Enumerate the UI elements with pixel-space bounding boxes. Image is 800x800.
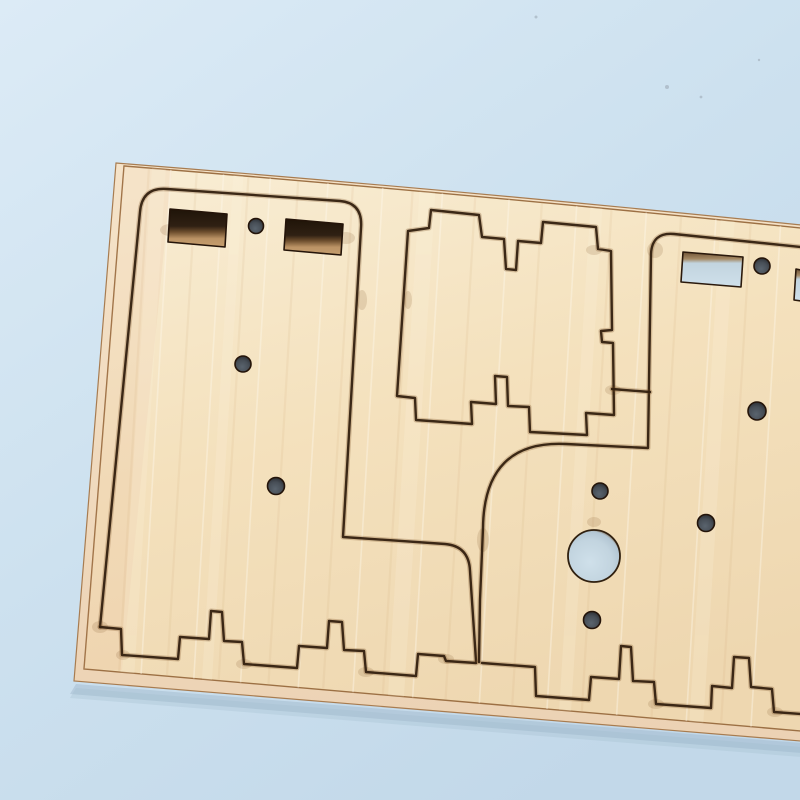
dust-speck — [758, 59, 760, 61]
slot-left-panel-1 — [168, 209, 227, 247]
photo-canvas — [0, 0, 800, 800]
dust-speck — [535, 16, 538, 19]
small-hole — [584, 612, 601, 629]
large-through-hole — [568, 530, 620, 582]
photo — [0, 0, 800, 800]
dust-speck — [700, 96, 703, 99]
small-hole — [249, 219, 264, 234]
small-hole — [235, 356, 251, 372]
slot-right-panel — [681, 252, 743, 287]
burn-mark — [587, 517, 601, 527]
slot-right-panel-edge — [794, 269, 800, 301]
small-hole — [698, 515, 715, 532]
small-hole — [592, 483, 608, 499]
slot-left-panel-2 — [284, 219, 343, 255]
small-hole — [754, 258, 770, 274]
small-hole — [268, 478, 285, 495]
small-hole — [748, 402, 766, 420]
dust-speck — [665, 85, 669, 89]
